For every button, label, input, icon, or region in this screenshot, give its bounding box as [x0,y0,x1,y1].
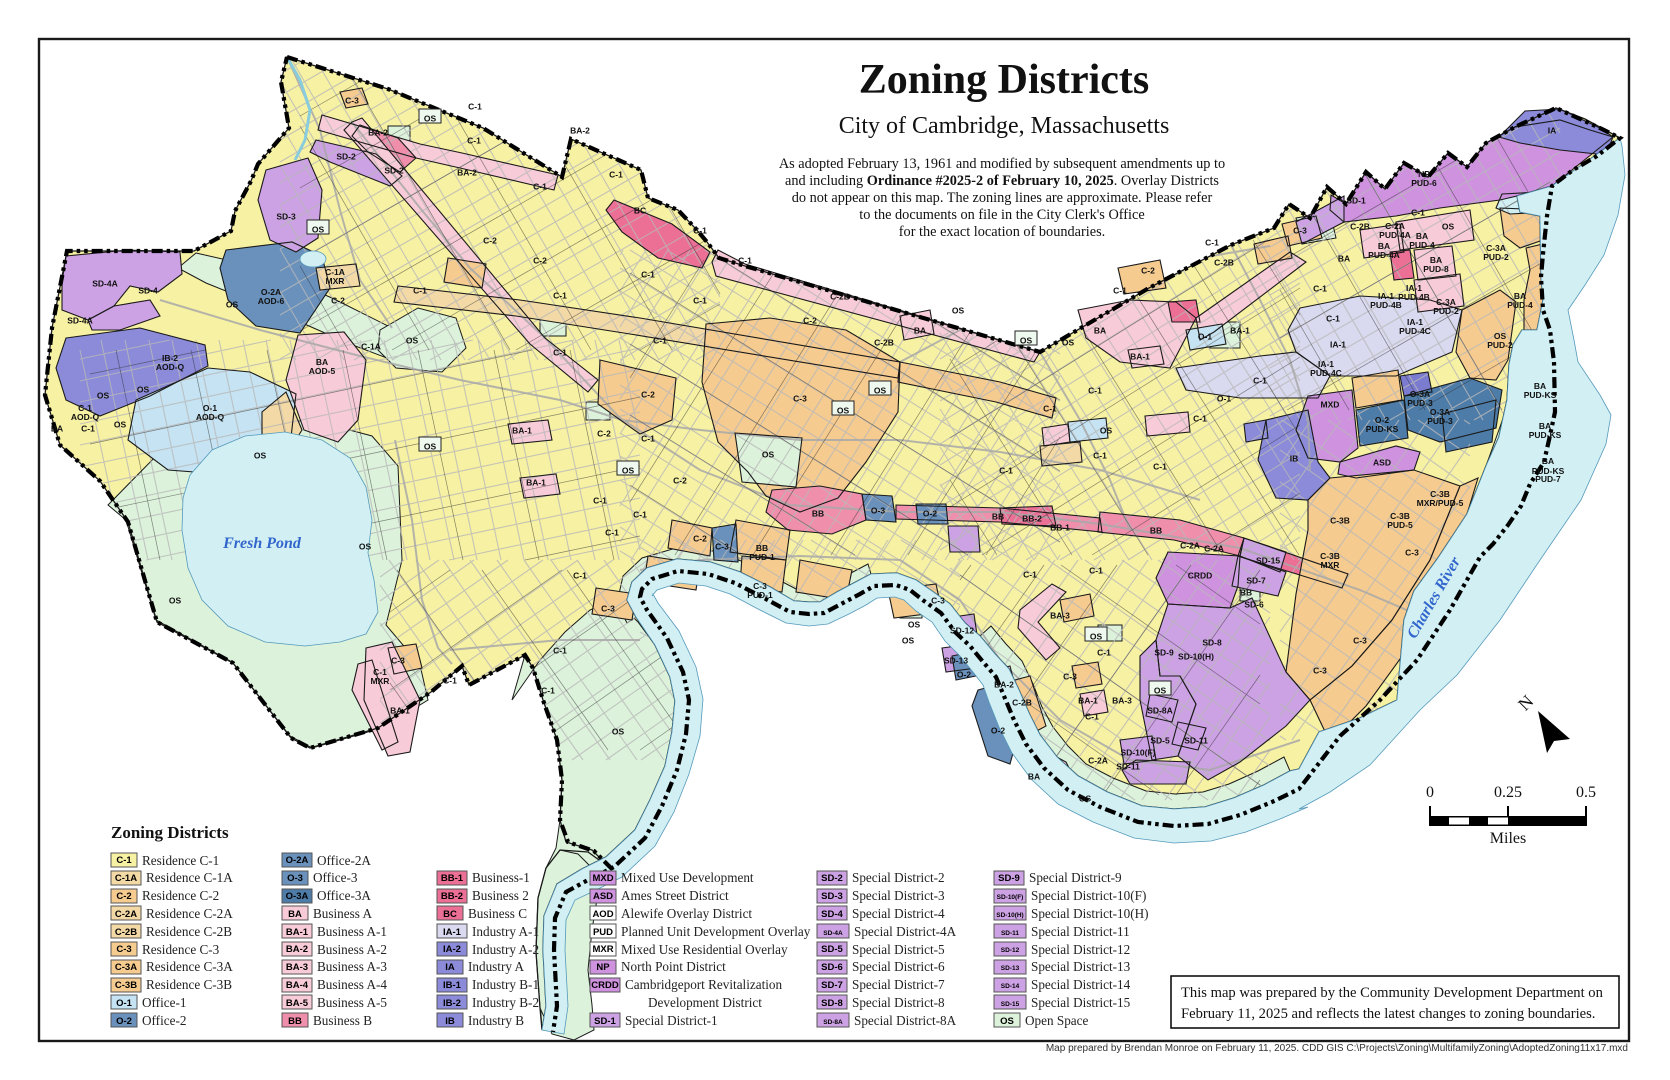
svg-text:C-1: C-1 [1326,314,1340,324]
svg-text:BB-1: BB-1 [1050,523,1070,533]
svg-text:Industry A-2: Industry A-2 [472,942,539,957]
svg-text:Mixed Use Residential Overlay: Mixed Use Residential Overlay [621,942,788,957]
svg-text:C-1: C-1 [693,226,707,236]
svg-text:Planned Unit Development Overl: Planned Unit Development Overlay [621,924,811,939]
svg-text:C-1: C-1 [553,646,567,656]
svg-text:OS: OS [952,306,965,316]
svg-text:C-1A: C-1A [361,342,381,352]
svg-text:C-1: C-1 [1153,462,1167,472]
svg-text:C-1: C-1 [641,270,655,280]
svg-text:C-1: C-1 [1205,238,1219,248]
svg-text:SD-2: SD-2 [336,152,356,162]
svg-text:IA-2: IA-2 [443,944,461,955]
svg-text:C-3: C-3 [391,656,405,666]
svg-text:O-1: O-1 [1217,394,1231,404]
svg-text:C-3B: C-3B [1330,516,1350,526]
svg-text:BB: BB [812,509,824,519]
svg-text:SD-13: SD-13 [1001,965,1020,972]
svg-text:C-2: C-2 [1141,266,1155,276]
svg-text:C-2B: C-2B [874,338,894,348]
svg-text:BA-3: BA-3 [286,962,308,973]
svg-text:SD-14: SD-14 [1001,983,1020,990]
svg-text:C-2B: C-2B [1012,698,1032,708]
svg-text:Industry B: Industry B [468,1013,524,1028]
svg-text:OS: OS [1020,336,1033,346]
svg-text:PUD-4C: PUD-4C [1399,326,1431,336]
svg-text:C-3: C-3 [116,944,131,955]
svg-text:Special District-11: Special District-11 [1031,924,1130,939]
svg-text:PUD: PUD [593,927,613,938]
svg-text:C-2B: C-2B [1214,258,1234,268]
svg-text:Special District-10(H): Special District-10(H) [1031,906,1149,921]
svg-text:SD-3: SD-3 [276,212,296,222]
svg-text:C-1: C-1 [1093,451,1107,461]
svg-text:C-1: C-1 [1085,712,1099,722]
svg-text:SD-8: SD-8 [1202,638,1222,648]
svg-text:C-3: C-3 [793,394,807,404]
svg-text:MXR: MXR [326,276,345,286]
svg-text:BA-1: BA-1 [512,426,532,436]
svg-text:SD-9: SD-9 [998,873,1020,884]
svg-text:PUD-6: PUD-6 [1411,178,1437,188]
svg-text:SD-15: SD-15 [1256,556,1280,566]
svg-text:Special District-9: Special District-9 [1029,870,1122,885]
svg-text:OS: OS [1079,794,1092,804]
svg-text:PUD-4A: PUD-4A [1379,230,1411,240]
svg-text:BA-1: BA-1 [1130,352,1150,362]
svg-text:C-2: C-2 [693,534,707,544]
svg-text:C-2: C-2 [597,429,611,439]
svg-text:C-2: C-2 [533,256,547,266]
svg-text:OS: OS [908,620,921,630]
svg-text:BA: BA [1028,772,1040,782]
svg-text:C-1: C-1 [1088,386,1102,396]
svg-text:Special District-4A: Special District-4A [854,924,957,939]
svg-text:0.25: 0.25 [1494,784,1522,801]
svg-text:BC: BC [443,909,457,920]
svg-text:Residence C-3A: Residence C-3A [146,959,233,974]
svg-text:C-1: C-1 [413,286,427,296]
svg-text:OS: OS [874,386,887,396]
svg-text:C-3: C-3 [1405,548,1419,558]
svg-text:BA-2: BA-2 [994,680,1014,690]
svg-text:Special District-1: Special District-1 [625,1013,718,1028]
svg-text:AOD-5: AOD-5 [309,366,336,376]
svg-text:PUD-3: PUD-3 [1407,398,1433,408]
svg-text:SD-11: SD-11 [1184,736,1208,746]
svg-text:Industry A: Industry A [468,959,525,974]
svg-text:ASD: ASD [1373,458,1391,468]
svg-text:Ames Street District: Ames Street District [621,888,729,903]
svg-text:C-2: C-2 [641,390,655,400]
svg-text:Office-1: Office-1 [142,995,186,1010]
svg-text:Residence C-3B: Residence C-3B [146,977,232,992]
svg-text:IA-1: IA-1 [443,927,462,938]
svg-text:C-1: C-1 [1411,208,1425,218]
svg-text:SD-9: SD-9 [1154,648,1174,658]
svg-text:IB-1: IB-1 [443,980,462,991]
svg-text:OS: OS [97,391,110,401]
svg-text:C-2: C-2 [116,891,131,902]
svg-text:O-1: O-1 [1198,332,1212,342]
svg-text:C-1: C-1 [443,676,457,686]
svg-text:PUD-4: PUD-4 [1409,240,1435,250]
svg-text:O-2: O-2 [116,1016,132,1027]
svg-text:SD-5: SD-5 [1150,736,1170,746]
svg-text:OS: OS [1154,686,1167,696]
svg-text:BA: BA [288,909,302,920]
svg-text:C-1: C-1 [81,424,95,434]
svg-text:SD-4A: SD-4A [92,279,118,289]
svg-text:C-2: C-2 [673,476,687,486]
svg-text:Special District-5: Special District-5 [852,942,945,957]
svg-text:BB: BB [1150,526,1162,536]
svg-text:Office-3A: Office-3A [317,888,371,903]
svg-text:SD-10(F): SD-10(F) [1121,748,1156,758]
svg-text:C-1: C-1 [533,182,547,192]
svg-text:BB: BB [288,1016,302,1027]
svg-text:SD-10(F): SD-10(F) [997,894,1024,901]
svg-text:PUD-4B: PUD-4B [1370,300,1402,310]
svg-text:Residence C-2: Residence C-2 [142,888,219,903]
svg-text:C-1: C-1 [593,496,607,506]
svg-text:BC: BC [634,206,646,216]
svg-text:C-1: C-1 [116,855,132,866]
svg-text:C-1: C-1 [641,434,655,444]
svg-text:BA-4: BA-4 [286,980,309,991]
svg-text:OS: OS [424,442,437,452]
svg-text:C-2A: C-2A [115,909,137,920]
svg-text:0: 0 [1426,784,1434,801]
svg-text:SD-15: SD-15 [1001,1001,1020,1008]
svg-text:C-1: C-1 [605,528,619,538]
svg-text:C-3: C-3 [1293,226,1307,236]
svg-text:IB: IB [1290,454,1299,464]
svg-text:SD-13: SD-13 [944,656,968,666]
svg-text:OS: OS [1090,632,1103,642]
svg-text:O-2: O-2 [957,670,971,680]
svg-text:0.5: 0.5 [1576,784,1596,801]
svg-text:SD-8A: SD-8A [1147,706,1173,716]
svg-text:SD-1: SD-1 [1346,196,1366,206]
svg-text:C-1: C-1 [541,686,555,696]
svg-text:C-3: C-3 [601,604,615,614]
svg-text:OS: OS [424,114,437,124]
svg-text:SD-8A: SD-8A [823,1019,843,1026]
svg-text:O-1: O-1 [116,998,133,1009]
svg-text:Special District-2: Special District-2 [852,870,945,885]
svg-text:Business B: Business B [313,1013,372,1028]
svg-text:O-2: O-2 [923,509,937,519]
svg-text:OS: OS [1100,426,1113,436]
svg-text:O-3: O-3 [287,873,303,884]
svg-text:to the documents on file in th: to the documents on file in the City Cle… [859,207,1144,223]
svg-text:Development District: Development District [648,995,762,1010]
svg-text:SD-4A: SD-4A [823,930,843,937]
svg-text:C-1: C-1 [738,256,752,266]
svg-text:Alewife Overlay District: Alewife Overlay District [621,906,752,921]
svg-text:SD-12: SD-12 [950,626,974,636]
svg-text:C-3: C-3 [715,542,729,552]
svg-text:Business C: Business C [468,906,527,921]
svg-text:OS: OS [622,466,635,476]
svg-text:PUD-4A: PUD-4A [1368,250,1400,260]
svg-text:Residence C-2B: Residence C-2B [146,924,232,939]
svg-text:SD-3: SD-3 [821,891,843,902]
svg-text:PUD-2: PUD-2 [1433,306,1459,316]
svg-text:O-2A: O-2A [286,855,309,866]
svg-text:OS: OS [902,636,915,646]
svg-text:PUD-5: PUD-5 [1387,520,1413,530]
svg-text:BB-1: BB-1 [441,873,464,884]
svg-text:Special District-13: Special District-13 [1031,959,1131,974]
svg-text:Miles: Miles [1490,830,1526,847]
svg-text:O-3: O-3 [871,506,885,516]
svg-text:for the exact location of boun: for the exact location of boundaries. [899,224,1105,240]
svg-text:SD-2: SD-2 [821,873,843,884]
svg-text:BB: BB [1240,588,1252,598]
svg-text:IA-1: IA-1 [1330,340,1346,350]
svg-text:BA-2: BA-2 [286,944,308,955]
svg-text:BA: BA [1094,326,1106,336]
svg-text:C-3B: C-3B [115,980,137,991]
svg-text:PUD-2: PUD-2 [1487,340,1513,350]
svg-text:AOD: AOD [592,909,613,920]
svg-text:C-3A: C-3A [115,962,137,973]
svg-text:C-1: C-1 [1253,376,1267,386]
svg-text:IB-2: IB-2 [443,998,461,1009]
svg-text:C-3: C-3 [931,596,945,606]
svg-text:Fresh Pond: Fresh Pond [222,535,302,552]
svg-text:OS: OS [1062,338,1075,348]
svg-text:Special District-6: Special District-6 [852,959,945,974]
svg-text:C-2B: C-2B [1350,222,1370,232]
svg-text:C-3: C-3 [1353,636,1367,646]
svg-text:C-1: C-1 [553,348,567,358]
svg-text:BA-1: BA-1 [1230,326,1250,336]
svg-text:C-1: C-1 [999,466,1013,476]
svg-text:OS: OS [312,225,325,235]
svg-text:BB-2: BB-2 [441,891,463,902]
svg-text:OS: OS [1000,1016,1014,1027]
svg-text:Industry A-1: Industry A-1 [472,924,539,939]
svg-text:PUD-KS: PUD-KS [1529,430,1562,440]
svg-text:IB: IB [445,1016,455,1027]
svg-text:Special District-12: Special District-12 [1031,942,1130,957]
svg-text:BA-1: BA-1 [286,927,309,938]
svg-text:City of Cambridge, Massachuset: City of Cambridge, Massachusetts [839,113,1170,139]
svg-text:C-3: C-3 [1063,672,1077,682]
svg-text:Industry B-1: Industry B-1 [472,977,539,992]
svg-text:SD-2: SD-2 [384,166,404,176]
svg-text:C-1: C-1 [609,170,623,180]
svg-text:Special District-3: Special District-3 [852,888,945,903]
svg-text:C-2A: C-2A [1088,756,1108,766]
svg-text:NP: NP [596,962,610,973]
svg-text:SD-7: SD-7 [821,980,843,991]
svg-text:PUD-2: PUD-2 [1483,252,1509,262]
svg-text:C-2: C-2 [483,236,497,246]
svg-text:SD-8: SD-8 [821,998,843,1009]
svg-text:C-1: C-1 [1023,570,1037,580]
svg-text:MXD: MXD [592,873,613,884]
svg-text:C-2A: C-2A [1180,541,1200,551]
svg-text:SD-4A: SD-4A [67,316,93,326]
svg-text:SD-11: SD-11 [1116,762,1140,772]
svg-text:SD-6: SD-6 [821,962,843,973]
svg-text:Special District-8A: Special District-8A [854,1013,957,1028]
svg-text:BA: BA [1338,254,1350,264]
svg-text:Special District-7: Special District-7 [852,977,945,992]
svg-text:Office-2A: Office-2A [317,853,371,868]
svg-text:OS: OS [137,385,150,395]
svg-text:Business A: Business A [313,906,372,921]
svg-text:SD-11: SD-11 [1001,930,1019,937]
svg-text:Special District-10(F): Special District-10(F) [1031,888,1146,903]
svg-text:MXR/PUD-5: MXR/PUD-5 [1417,498,1464,508]
svg-text:AOD-Q: AOD-Q [71,412,100,422]
svg-text:Business 2: Business 2 [472,888,529,903]
svg-text:North Point District: North Point District [621,959,726,974]
svg-text:Cambridgeport Revitalization: Cambridgeport Revitalization [625,977,783,992]
svg-text:OS: OS [114,420,127,430]
svg-text:Business A-1: Business A-1 [317,924,387,939]
svg-text:and including Ordinance #2025-: and including Ordinance #2025-2 of Febru… [785,173,1219,189]
svg-text:CRDD: CRDD [1188,571,1213,581]
svg-text:AOD-Q: AOD-Q [156,362,185,372]
svg-text:Residence C-2A: Residence C-2A [146,906,233,921]
svg-text:MXR: MXR [592,944,613,955]
svg-text:C-1: C-1 [653,336,667,346]
svg-text:C-1: C-1 [1043,404,1057,414]
svg-text:C-2A: C-2A [1204,544,1224,554]
svg-text:PUD-4: PUD-4 [1507,300,1533,310]
svg-text:This map was prepared by the C: This map was prepared by the Community D… [1181,985,1604,1001]
svg-text:OS: OS [612,727,625,737]
svg-text:C-1: C-1 [633,510,647,520]
svg-text:Business A-5: Business A-5 [317,995,387,1010]
svg-text:SD-4: SD-4 [138,286,158,296]
svg-text:C-1: C-1 [1193,414,1207,424]
svg-text:OS: OS [762,450,775,460]
svg-text:PUD-8: PUD-8 [1423,264,1449,274]
svg-text:Business A-3: Business A-3 [317,959,387,974]
svg-text:BA-1: BA-1 [390,706,410,716]
svg-text:OS: OS [837,406,850,416]
svg-text:C-1: C-1 [553,291,567,301]
svg-text:PUD-KS: PUD-KS [1524,390,1557,400]
svg-text:Special District-8: Special District-8 [852,995,945,1010]
svg-text:SD-10(H): SD-10(H) [1178,652,1214,662]
svg-text:PUD-KS: PUD-KS [1366,424,1399,434]
svg-text:OS: OS [254,451,267,461]
svg-text:SD-1: SD-1 [594,1016,616,1027]
svg-text:OS: OS [359,542,372,552]
svg-text:C-1: C-1 [573,571,587,581]
svg-text:C-1: C-1 [1097,648,1111,658]
svg-text:Special District-14: Special District-14 [1031,977,1131,992]
svg-text:SD-7: SD-7 [1246,576,1266,586]
svg-text:AOD-Q: AOD-Q [196,412,225,422]
svg-text:C-2: C-2 [803,316,817,326]
svg-text:MXR: MXR [371,676,390,686]
svg-text:OS: OS [226,300,239,310]
svg-text:SD-4: SD-4 [821,909,843,920]
svg-text:C-1: C-1 [468,102,482,112]
svg-text:Mixed Use Development: Mixed Use Development [621,870,754,885]
svg-text:IA: IA [445,962,455,973]
svg-text:BA-2: BA-2 [457,168,477,178]
svg-text:AOD-6: AOD-6 [258,296,285,306]
svg-text:Business A-4: Business A-4 [317,977,387,992]
svg-text:BA: BA [914,326,926,336]
svg-text:Residence C-1A: Residence C-1A [146,870,233,885]
svg-text:Zoning Districts: Zoning Districts [859,57,1150,103]
svg-text:Special District-4: Special District-4 [852,906,945,921]
svg-text:O-2: O-2 [991,726,1005,736]
svg-text:Map prepared by Brendan Monroe: Map prepared by Brendan Monroe on Februa… [1046,1043,1628,1054]
svg-text:C-3: C-3 [1313,666,1327,676]
svg-text:PUD-1: PUD-1 [747,590,773,600]
svg-text:As adopted February 13, 1961 a: As adopted February 13, 1961 and modifie… [779,156,1225,172]
svg-text:IA: IA [1548,126,1557,136]
svg-text:O-3A: O-3A [286,891,309,902]
svg-text:C-2B: C-2B [115,927,137,938]
svg-text:PUD-7: PUD-7 [1535,474,1561,484]
svg-text:BA: BA [51,424,63,434]
svg-text:BA-3: BA-3 [1112,696,1132,706]
svg-text:OS: OS [1442,222,1455,232]
svg-text:C-2: C-2 [331,296,345,306]
svg-text:C-1: C-1 [1113,286,1127,296]
svg-text:SD-6: SD-6 [1244,600,1264,610]
svg-text:BA: BA [1542,456,1554,466]
svg-text:MXD: MXD [1321,400,1340,410]
svg-text:C-1: C-1 [1313,284,1327,294]
svg-text:BA-1: BA-1 [1078,696,1098,706]
svg-text:C-3: C-3 [345,96,359,106]
svg-text:Open Space: Open Space [1025,1013,1088,1028]
svg-text:Special District-15: Special District-15 [1031,995,1131,1010]
svg-text:Office-3: Office-3 [313,870,358,885]
svg-text:MXR: MXR [1321,560,1340,570]
svg-text:Office-2: Office-2 [142,1013,186,1028]
svg-text:SD-10(H): SD-10(H) [996,912,1023,919]
svg-text:BA-5: BA-5 [286,998,309,1009]
svg-text:BA-2: BA-2 [570,126,590,136]
svg-text:PUD-1: PUD-1 [749,552,775,562]
svg-text:Residence C-3: Residence C-3 [142,942,220,957]
svg-text:Business-1: Business-1 [472,870,530,885]
svg-text:C-1A: C-1A [115,873,137,884]
svg-text:Industry B-2: Industry B-2 [472,995,539,1010]
svg-text:PUD-4C: PUD-4C [1310,368,1342,378]
svg-text:SD-5: SD-5 [821,944,843,955]
svg-text:ASD: ASD [593,891,613,902]
svg-text:BA-3: BA-3 [1050,611,1070,621]
svg-text:PUD-4B: PUD-4B [1398,292,1430,302]
svg-text:C-1: C-1 [467,136,481,146]
svg-text:OS: OS [169,596,182,606]
svg-text:do not appear on this map. The: do not appear on this map. The zoning li… [792,190,1213,206]
svg-text:CRDD: CRDD [591,980,619,991]
svg-text:Residence C-1: Residence C-1 [142,853,219,868]
svg-text:SD-12: SD-12 [1001,947,1020,954]
svg-text:BB: BB [992,512,1004,522]
svg-text:February 11, 2025 and reflects: February 11, 2025 and reflects the lates… [1181,1006,1595,1022]
svg-text:PUD-3: PUD-3 [1427,416,1453,426]
svg-text:C-1: C-1 [1089,566,1103,576]
